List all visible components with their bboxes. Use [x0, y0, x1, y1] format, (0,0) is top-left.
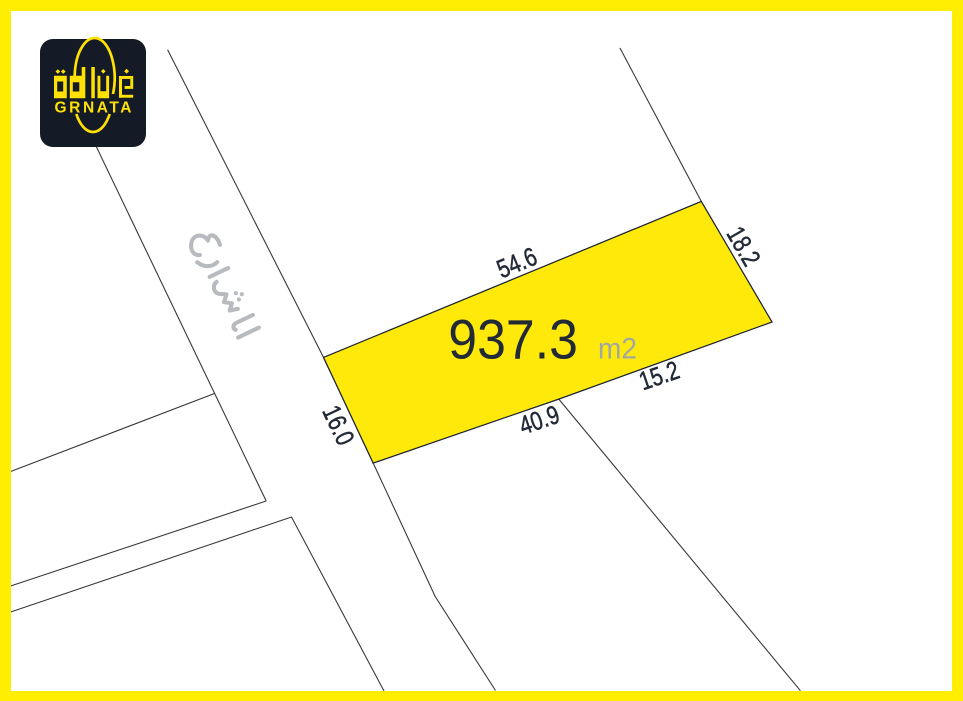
svg-text:m2: m2: [598, 333, 637, 366]
svg-text:937.3: 937.3: [448, 309, 578, 371]
svg-text:GRNATA: GRNATA: [55, 99, 132, 116]
